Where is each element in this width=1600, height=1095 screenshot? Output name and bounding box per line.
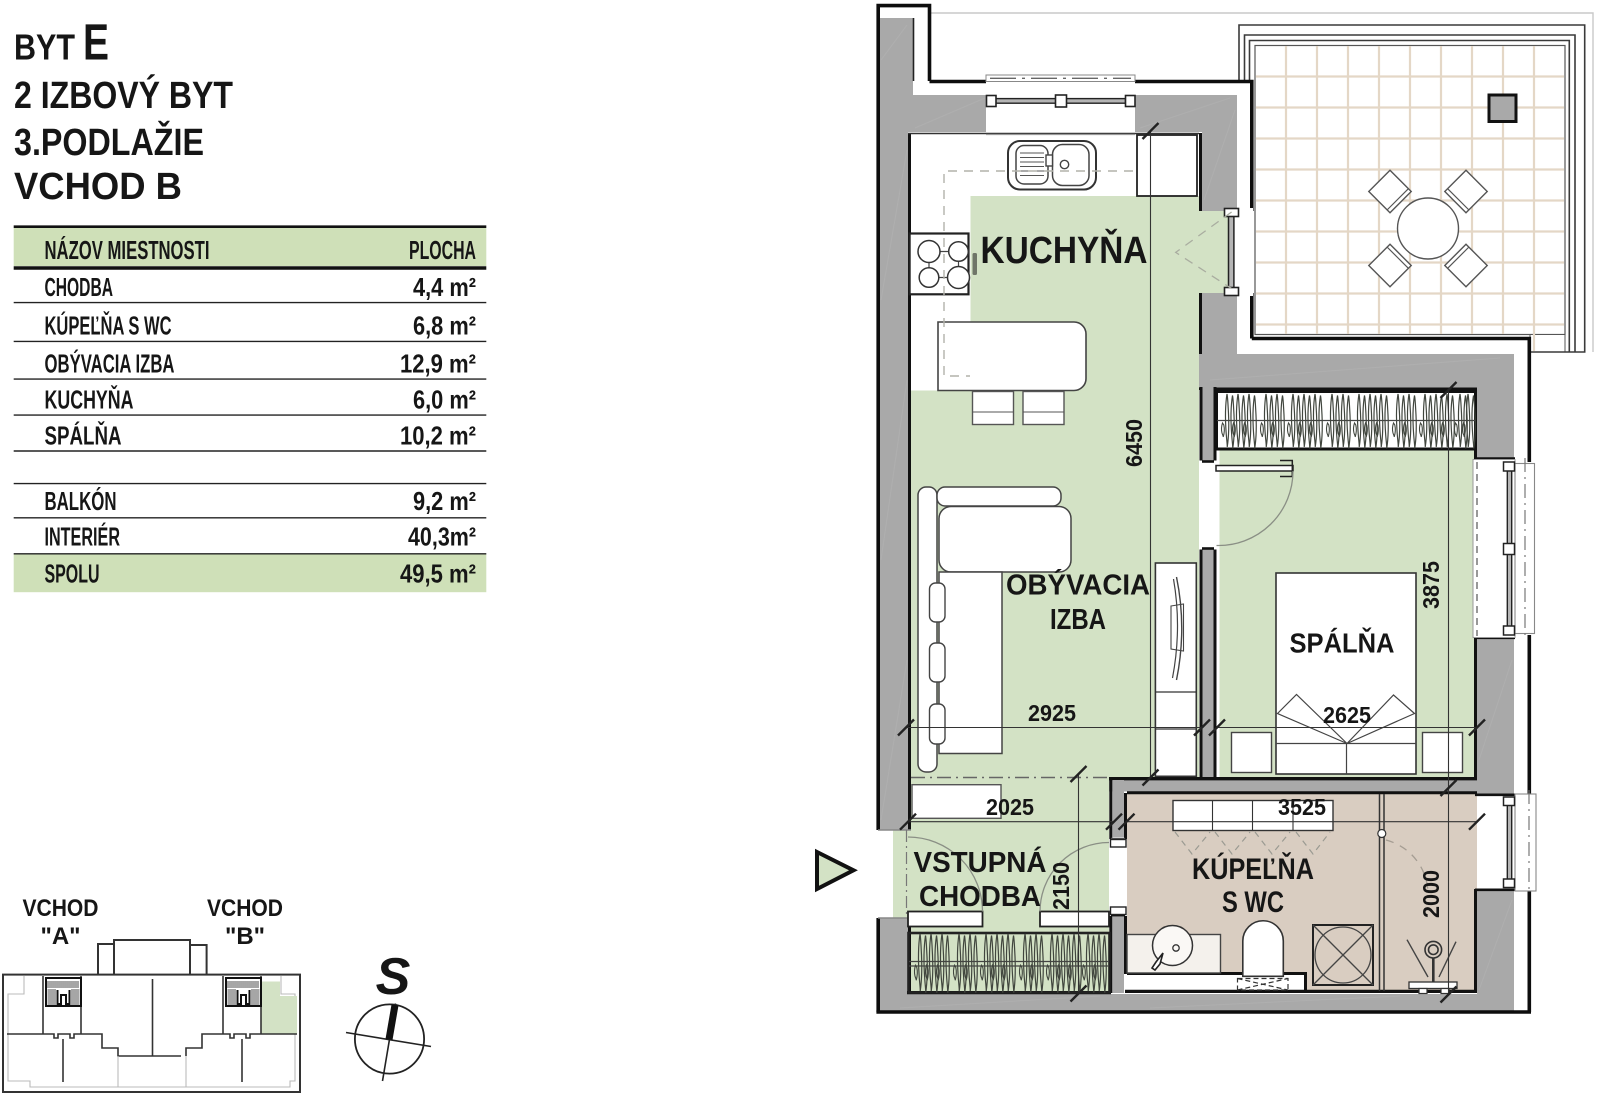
svg-text:VSTUPNÁ: VSTUPNÁ xyxy=(914,845,1047,879)
svg-text:KÚPEĽŇA: KÚPEĽŇA xyxy=(1192,852,1314,886)
svg-text:"A": "A" xyxy=(40,923,80,950)
svg-text:KÚPEĽŇA S WC: KÚPEĽŇA S WC xyxy=(45,311,172,341)
svg-text:2625: 2625 xyxy=(1323,702,1371,728)
svg-text:OBÝVACIA IZBA: OBÝVACIA IZBA xyxy=(45,348,175,378)
svg-text:CHODBA: CHODBA xyxy=(919,881,1041,913)
svg-text:6,0 m²: 6,0 m² xyxy=(413,385,476,415)
svg-text:CHODBA: CHODBA xyxy=(45,272,114,302)
svg-text:S: S xyxy=(376,948,411,1006)
svg-text:12,9 m²: 12,9 m² xyxy=(400,348,476,378)
svg-text:3525: 3525 xyxy=(1278,794,1326,820)
svg-text:INTERIÉR: INTERIÉR xyxy=(45,521,121,551)
svg-text:SPOLU: SPOLU xyxy=(45,559,100,589)
svg-text:VCHOD: VCHOD xyxy=(23,895,99,922)
svg-text:6,8 m²: 6,8 m² xyxy=(413,311,476,341)
svg-text:3.PODLAŽIE: 3.PODLAŽIE xyxy=(14,120,204,164)
svg-text:"B": "B" xyxy=(225,923,265,950)
svg-text:KUCHYŇA: KUCHYŇA xyxy=(45,385,134,415)
svg-text:BYT: BYT xyxy=(14,27,75,68)
svg-text:SPÁLŇA: SPÁLŇA xyxy=(45,421,122,451)
svg-text:PLOCHA: PLOCHA xyxy=(409,235,476,265)
svg-text:VCHOD B: VCHOD B xyxy=(14,166,182,208)
svg-text:40,3m²: 40,3m² xyxy=(408,521,476,551)
svg-text:2000: 2000 xyxy=(1418,870,1444,918)
svg-text:2 IZBOVÝ BYT: 2 IZBOVÝ BYT xyxy=(14,73,233,117)
svg-text:KUCHYŇA: KUCHYŇA xyxy=(981,228,1148,272)
svg-text:4,4 m²: 4,4 m² xyxy=(413,272,476,302)
svg-text:SPÁLŇA: SPÁLŇA xyxy=(1290,628,1395,659)
svg-text:S WC: S WC xyxy=(1222,886,1284,919)
svg-text:OBÝVACIA: OBÝVACIA xyxy=(1006,568,1150,602)
svg-text:3875: 3875 xyxy=(1418,561,1444,609)
svg-text:IZBA: IZBA xyxy=(1050,604,1106,636)
svg-text:6450: 6450 xyxy=(1121,419,1147,467)
svg-text:10,2 m²: 10,2 m² xyxy=(400,421,476,451)
svg-text:BALKÓN: BALKÓN xyxy=(45,486,117,516)
svg-text:2150: 2150 xyxy=(1048,862,1074,910)
svg-text:2925: 2925 xyxy=(1028,700,1076,726)
svg-text:49,5 m²: 49,5 m² xyxy=(400,559,476,589)
svg-text:E: E xyxy=(83,14,109,71)
svg-text:NÁZOV MIESTNOSTI: NÁZOV MIESTNOSTI xyxy=(45,235,210,265)
svg-text:VCHOD: VCHOD xyxy=(207,895,283,922)
svg-text:2025: 2025 xyxy=(986,794,1034,820)
svg-text:9,2 m²: 9,2 m² xyxy=(413,486,476,516)
